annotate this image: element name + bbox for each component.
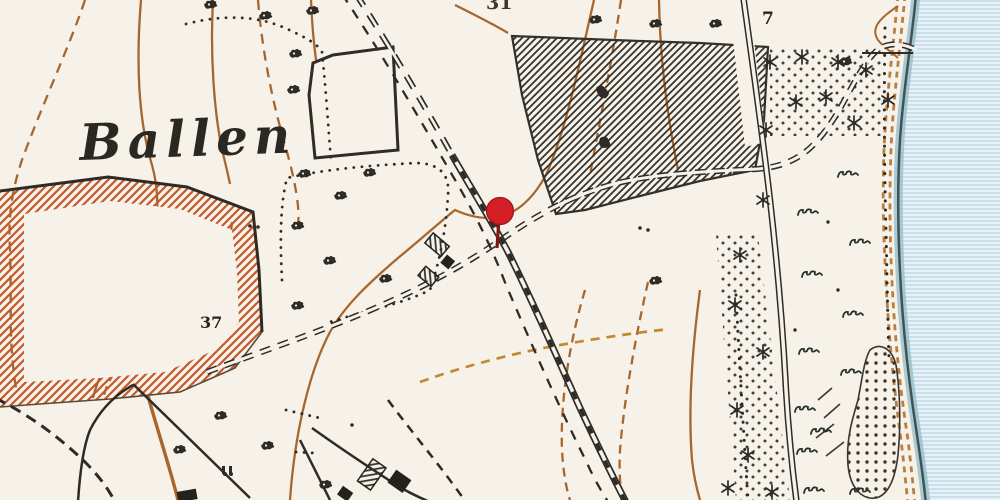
- map-artwork: Ballen 37 7 31: [0, 0, 1000, 500]
- parcel-number-31: 31: [486, 0, 512, 14]
- hatched-field: [0, 177, 262, 407]
- water-area: [898, 0, 1000, 500]
- map-canvas[interactable]: Ballen 37 7 31: [0, 0, 1000, 500]
- parcel-number-7: 7: [762, 9, 774, 29]
- spot-height-label: 37: [200, 313, 222, 332]
- place-label: Ballen: [76, 105, 297, 172]
